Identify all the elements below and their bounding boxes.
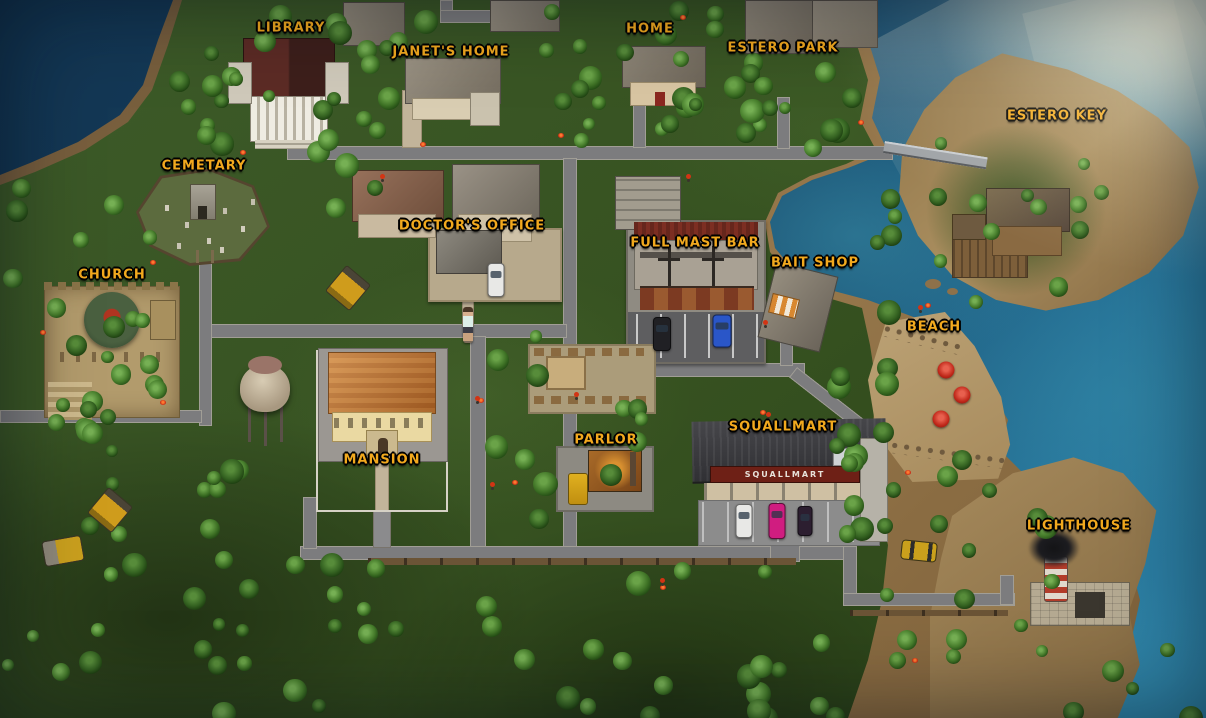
map-labels-layer: LIBRARYJANET'S HOMEHOMEESTERO PARKESTERO… (0, 0, 1206, 718)
map-label-janets-home[interactable]: JANET'S HOME (392, 45, 509, 60)
map-label-full-mast-bar[interactable]: FULL MAST BAR (630, 236, 759, 251)
map-label-estero-key[interactable]: ESTERO KEY (1007, 109, 1107, 124)
map-label-parlor[interactable]: PARLOR (574, 433, 637, 448)
map-label-lighthouse[interactable]: LIGHTHOUSE (1027, 519, 1131, 534)
map-label-beach[interactable]: BEACH (907, 320, 961, 335)
map-label-church[interactable]: CHURCH (78, 268, 145, 283)
map-label-cemetary[interactable]: CEMETARY (162, 159, 247, 174)
map-label-bait-shop[interactable]: BAIT SHOP (771, 256, 859, 271)
map-label-library[interactable]: LIBRARY (257, 21, 326, 36)
map-label-mansion[interactable]: MANSION (343, 453, 420, 468)
map-label-squallmart[interactable]: SQUALLMART (729, 420, 838, 435)
map-label-doctors-office[interactable]: DOCTOR'S OFFICE (399, 219, 545, 234)
map-label-home[interactable]: HOME (626, 22, 674, 37)
map-label-estero-park[interactable]: ESTERO PARK (727, 41, 838, 56)
game-town-map: SQUALLMART LIBRARYJANET'S HOMEHOMEESTERO… (0, 0, 1206, 718)
